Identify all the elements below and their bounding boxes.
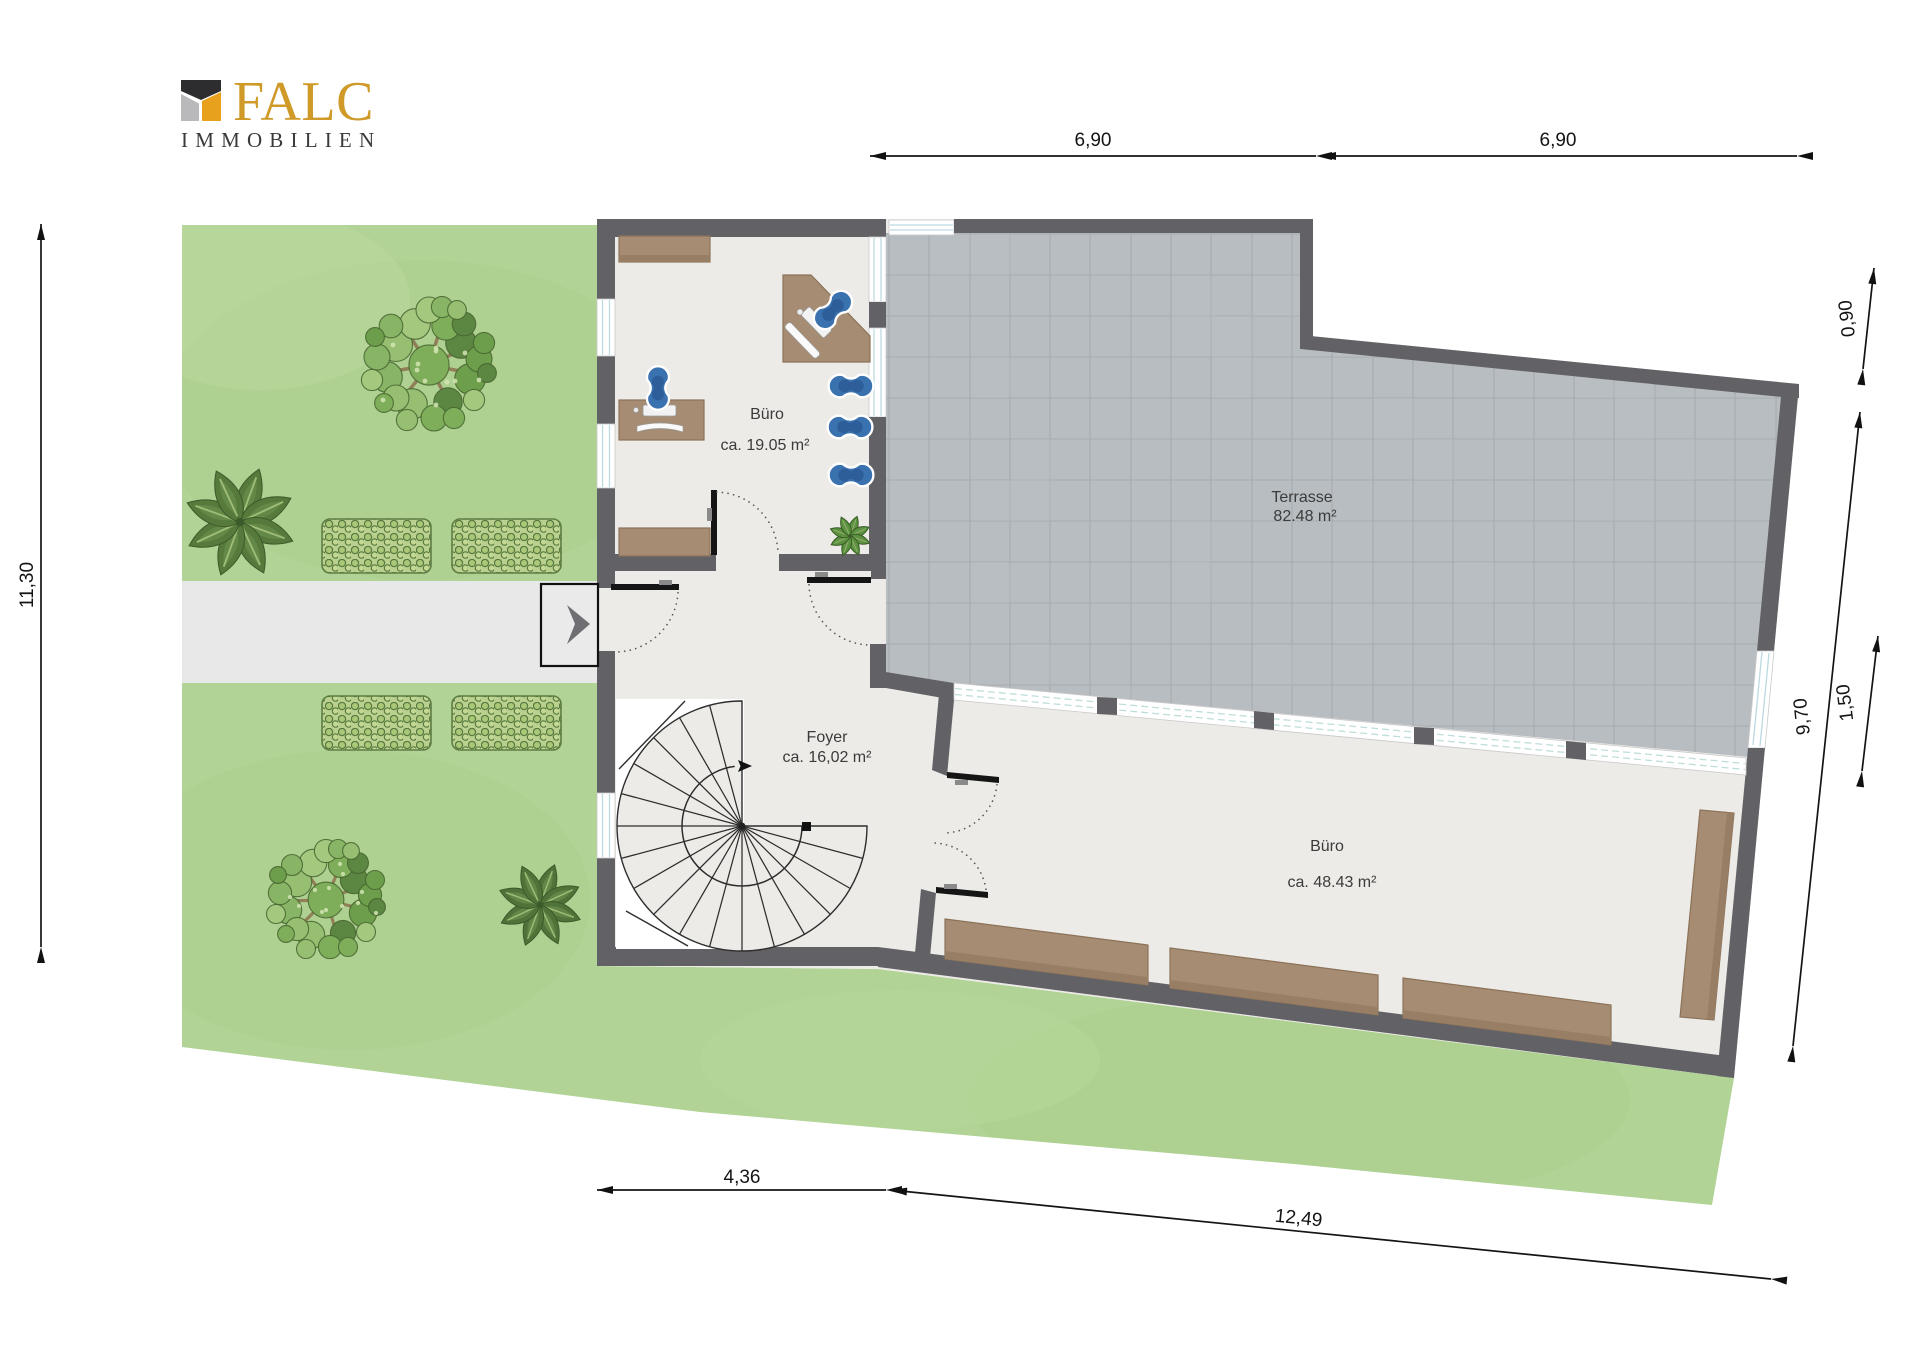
svg-text:ca. 16,02 m²: ca. 16,02 m² (783, 749, 873, 766)
svg-text:4,36: 4,36 (724, 1167, 761, 1188)
svg-text:12,49: 12,49 (1274, 1206, 1323, 1232)
svg-text:0,90: 0,90 (1835, 299, 1860, 338)
svg-text:ca. 48.43 m²: ca. 48.43 m² (1288, 874, 1378, 891)
svg-text:ca. 19.05 m²: ca. 19.05 m² (721, 437, 811, 454)
svg-text:6,90: 6,90 (1540, 130, 1577, 151)
svg-text:9,70: 9,70 (1790, 697, 1815, 736)
svg-text:Terrasse: Terrasse (1271, 489, 1332, 506)
svg-text:82.48 m²: 82.48 m² (1273, 508, 1337, 525)
svg-text:FALC: FALC (233, 71, 374, 133)
svg-text:Foyer: Foyer (807, 729, 849, 746)
svg-text:1,50: 1,50 (1833, 683, 1858, 722)
svg-text:Büro: Büro (750, 406, 784, 423)
svg-text:11,30: 11,30 (17, 562, 38, 608)
svg-text:Büro: Büro (1310, 838, 1344, 855)
svg-text:6,90: 6,90 (1075, 130, 1112, 151)
svg-text:IMMOBILIEN: IMMOBILIEN (181, 128, 381, 152)
